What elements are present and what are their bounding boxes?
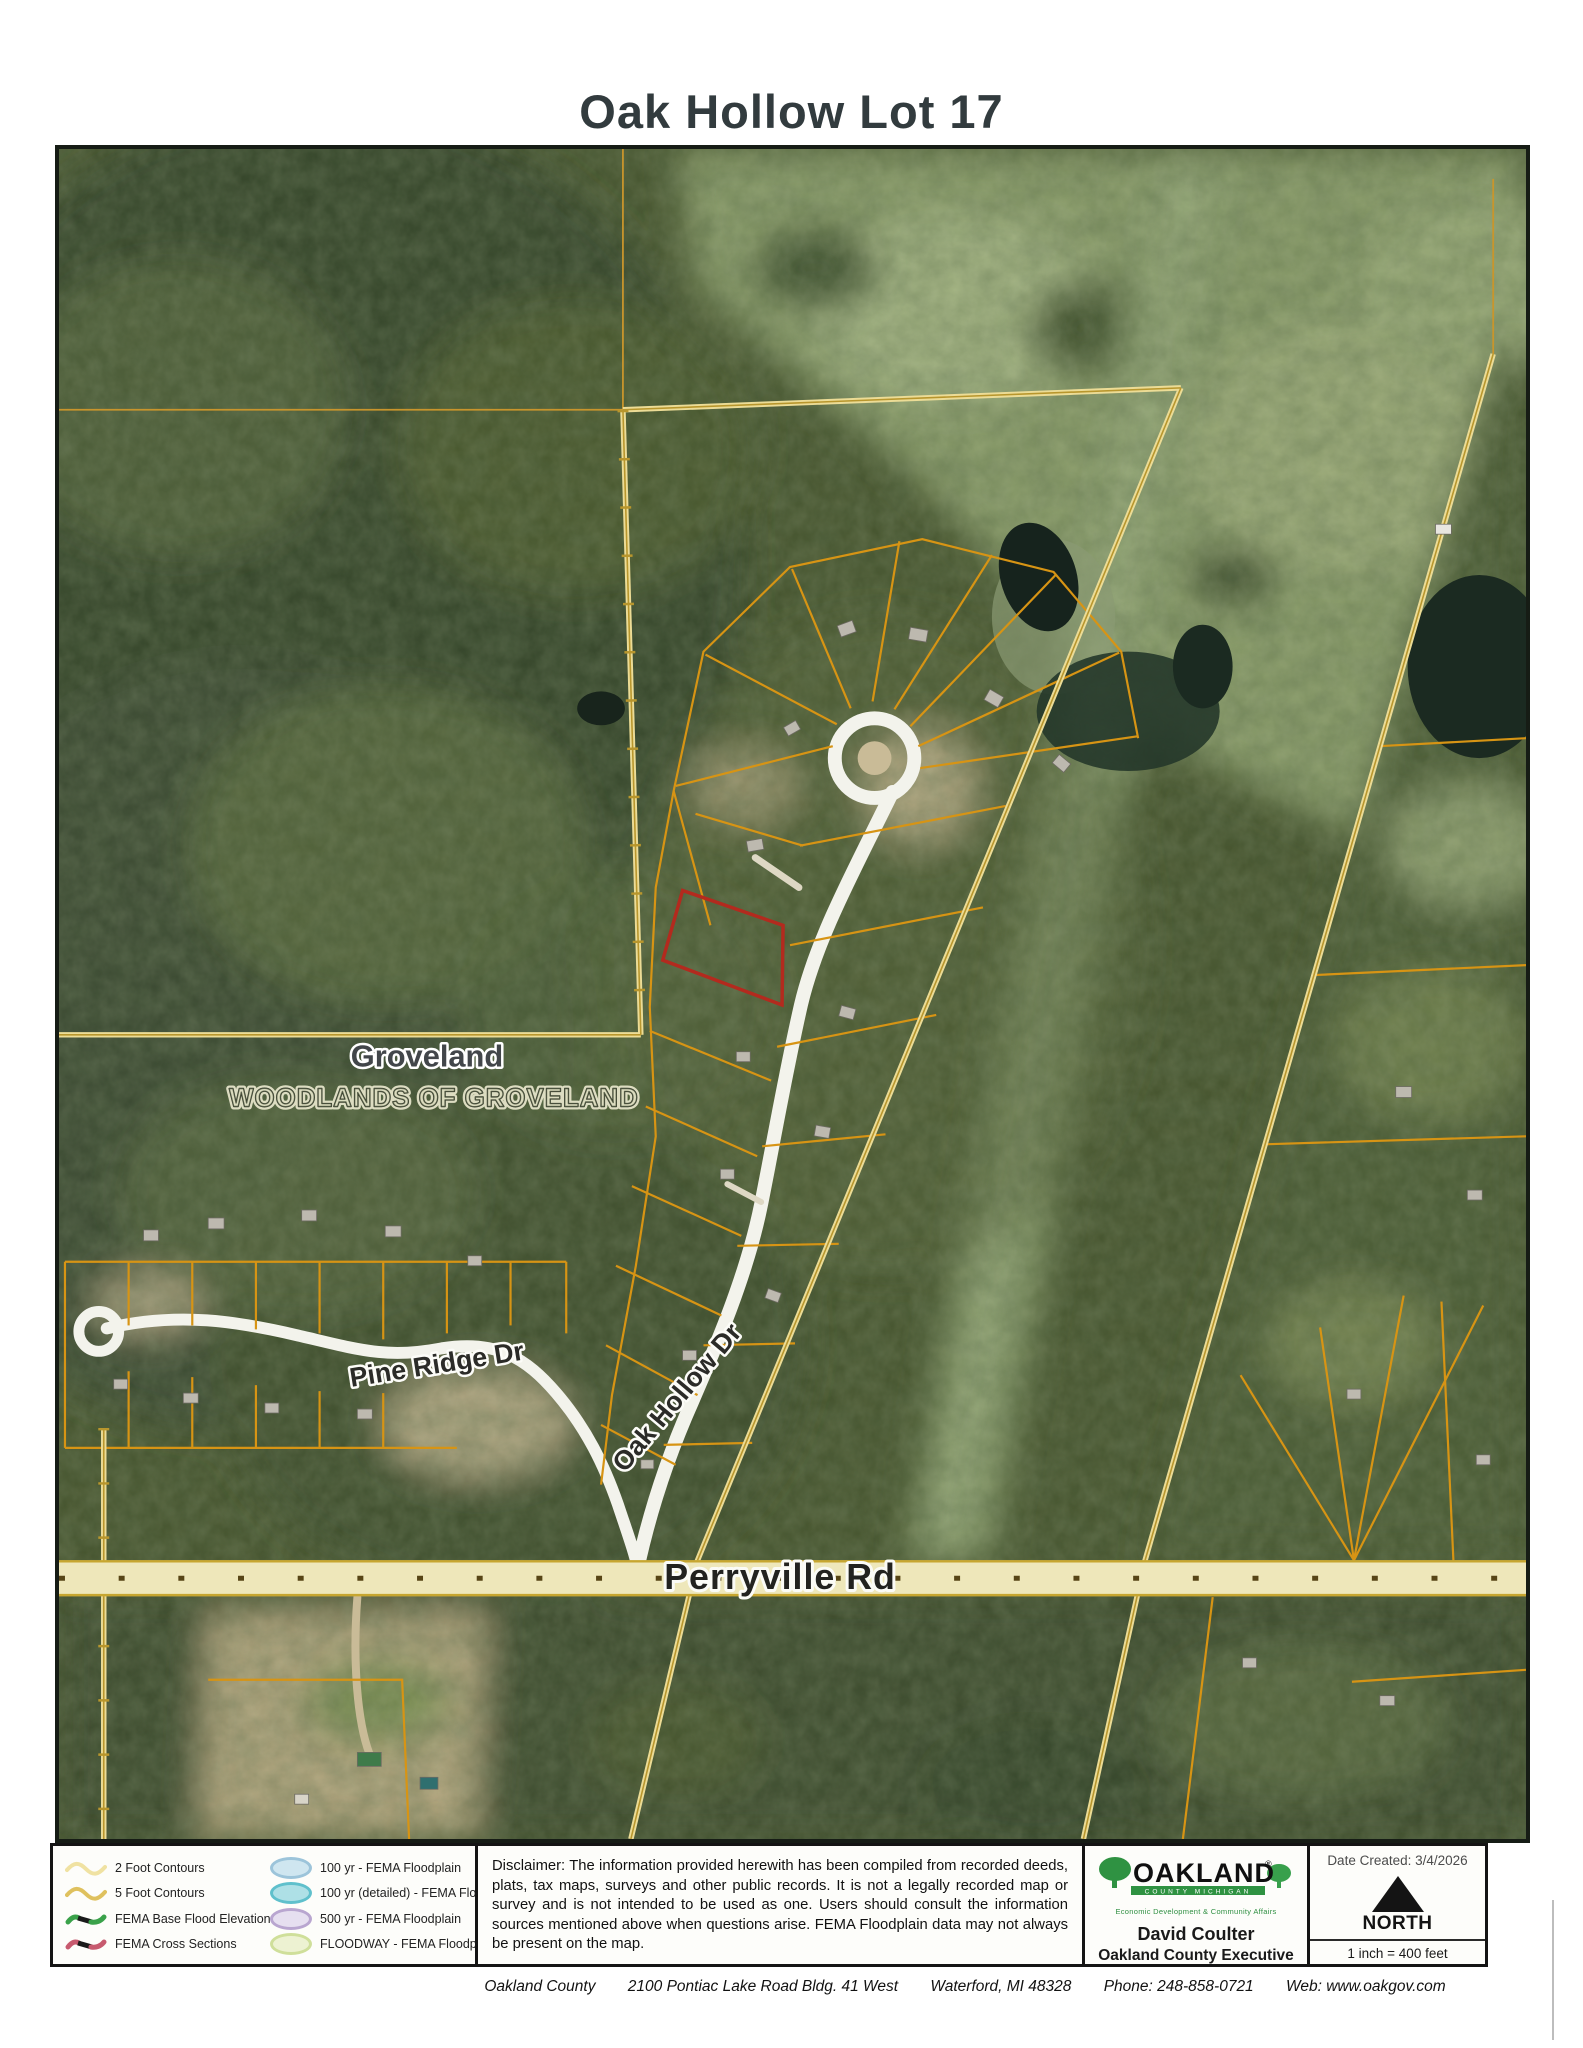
- legend-item-500yr-floodplain: 500 yr - FEMA Floodplain: [268, 1907, 468, 1931]
- logo-wordmark: OAKLAND: [1133, 1858, 1275, 1888]
- contour-5ft-wave-icon: [63, 1884, 109, 1902]
- map-info-box: Date Created: 3/4/2026 NORTH 1 inch = 40…: [1307, 1843, 1488, 1967]
- floodplain-100yr-ellipse-icon: [268, 1857, 314, 1879]
- legend-label: 2 Foot Contours: [115, 1861, 205, 1875]
- scale-text: 1 inch = 400 feet: [1310, 1939, 1485, 1961]
- executive-title: Oakland County Executive: [1085, 1947, 1307, 1965]
- floodway-ellipse-icon: [268, 1933, 314, 1955]
- legend-label: FLOODWAY - FEMA Floodplain: [320, 1937, 496, 1951]
- disclaimer-text: Disclaimer: The information provided her…: [492, 1857, 1068, 1955]
- footer-address-line: Oakland County 2100 Pontiac Lake Road Bl…: [380, 1978, 1550, 1996]
- legend-label: FEMA Base Flood Elevations: [115, 1912, 277, 1926]
- agency-box: OAKLAND ® COUNTY MICHIGAN Economic Devel…: [1082, 1843, 1310, 1967]
- floodplain-500yr-ellipse-icon: [268, 1908, 314, 1930]
- legend-box: 2 Foot Contours 5 Foot Contours FEMA Bas…: [50, 1843, 478, 1967]
- legend-item-5ft-contours: 5 Foot Contours: [63, 1881, 268, 1905]
- legend-item-floodway: FLOODWAY - FEMA Floodplain: [268, 1932, 468, 1956]
- footer-address: 2100 Pontiac Lake Road Bldg. 41 West: [628, 1978, 898, 1995]
- legend-item-fema-cross-sections: FEMA Cross Sections: [63, 1932, 268, 1956]
- contour-2ft-wave-icon: [63, 1859, 109, 1877]
- footer-phone: Phone: 248-858-0721: [1104, 1978, 1254, 1995]
- legend-item-fema-bfe: FEMA Base Flood Elevations: [63, 1907, 268, 1931]
- fema-bfe-zigzag-icon: [63, 1910, 109, 1928]
- label-perryville: Perryville Rd: [664, 1557, 896, 1597]
- disclaimer-box: Disclaimer: The information provided her…: [475, 1843, 1085, 1967]
- label-community: Groveland: [351, 1039, 503, 1074]
- legend-item-2ft-contours: 2 Foot Contours: [63, 1856, 268, 1880]
- footer-org: Oakland County: [484, 1978, 595, 1995]
- footer-city: Waterford, MI 48328: [930, 1978, 1071, 1995]
- floodplain-100yr-detailed-ellipse-icon: [268, 1882, 314, 1904]
- logo-registered-mark: ®: [1265, 1859, 1272, 1869]
- aerial-map-canvas: Groveland WOODLANDS OF GROVELAND WOODLAN…: [59, 149, 1526, 1839]
- footer-web: Web: www.oakgov.com: [1286, 1978, 1446, 1995]
- fema-cross-section-zigzag-icon: [63, 1935, 109, 1953]
- legend-label: 100 yr - FEMA Floodplain: [320, 1861, 461, 1875]
- page-title: Oak Hollow Lot 17: [0, 84, 1583, 139]
- legend-label: FEMA Cross Sections: [115, 1937, 237, 1951]
- logo-tagline: Economic Development & Community Affairs: [1085, 1907, 1307, 1916]
- legend-item-100yr-floodplain: 100 yr - FEMA Floodplain: [268, 1856, 468, 1880]
- oakland-county-logo: OAKLAND ® COUNTY MICHIGAN: [1093, 1855, 1299, 1901]
- label-subdivision: WOODLANDS OF GROVELAND: [229, 1084, 639, 1112]
- legend-label: 5 Foot Contours: [115, 1886, 205, 1900]
- scan-artifact-line: [1552, 1900, 1554, 2040]
- aerial-map: Groveland WOODLANDS OF GROVELAND WOODLAN…: [55, 145, 1530, 1843]
- logo-subtext: COUNTY MICHIGAN: [1145, 1889, 1252, 1896]
- executive-name: David Coulter: [1085, 1924, 1307, 1945]
- legend-item-100yr-detailed-floodplain: 100 yr (detailed) - FEMA Floodplain: [268, 1881, 468, 1905]
- north-label: NORTH: [1310, 1913, 1485, 1935]
- north-arrow-icon: [1372, 1876, 1424, 1912]
- date-created: Date Created: 3/4/2026: [1310, 1853, 1485, 1868]
- legend-label: 500 yr - FEMA Floodplain: [320, 1912, 461, 1926]
